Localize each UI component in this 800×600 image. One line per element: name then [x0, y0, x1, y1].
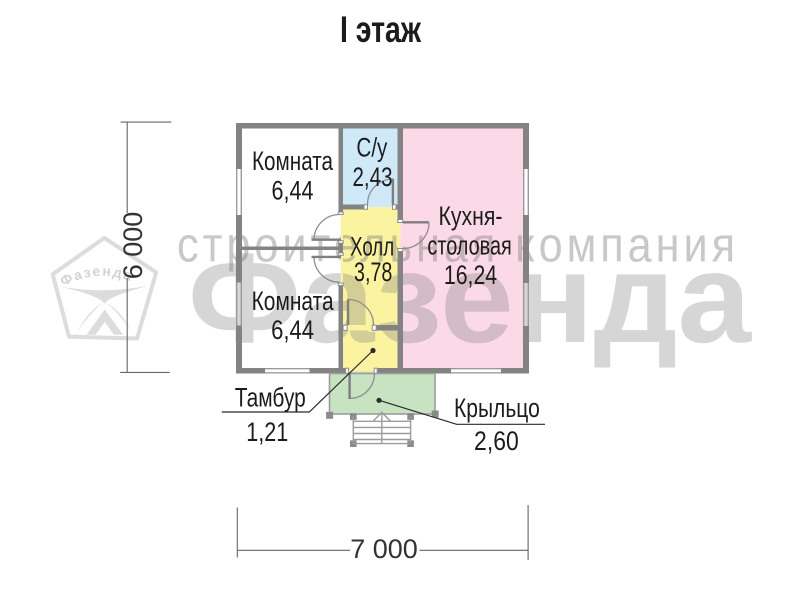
- svg-text:Кухня-: Кухня-: [439, 201, 503, 231]
- svg-text:6,44: 6,44: [271, 315, 314, 345]
- svg-text:3,78: 3,78: [354, 257, 392, 287]
- svg-text:2,43: 2,43: [353, 162, 393, 192]
- svg-text:16,24: 16,24: [444, 260, 497, 290]
- svg-text:7 000: 7 000: [350, 534, 418, 564]
- svg-text:I этаж: I этаж: [340, 9, 422, 50]
- svg-text:6 000: 6 000: [118, 212, 148, 280]
- svg-text:Комната: Комната: [252, 146, 334, 176]
- svg-text:2,60: 2,60: [474, 426, 519, 456]
- svg-text:1,21: 1,21: [246, 417, 288, 447]
- svg-text:6,44: 6,44: [272, 176, 314, 206]
- svg-text:С/у: С/у: [356, 132, 387, 162]
- svg-text:столовая: столовая: [427, 231, 511, 261]
- svg-text:Комната: Комната: [252, 286, 335, 316]
- svg-text:Крыльцо: Крыльцо: [454, 393, 540, 423]
- svg-text:Тамбур: Тамбур: [235, 383, 306, 413]
